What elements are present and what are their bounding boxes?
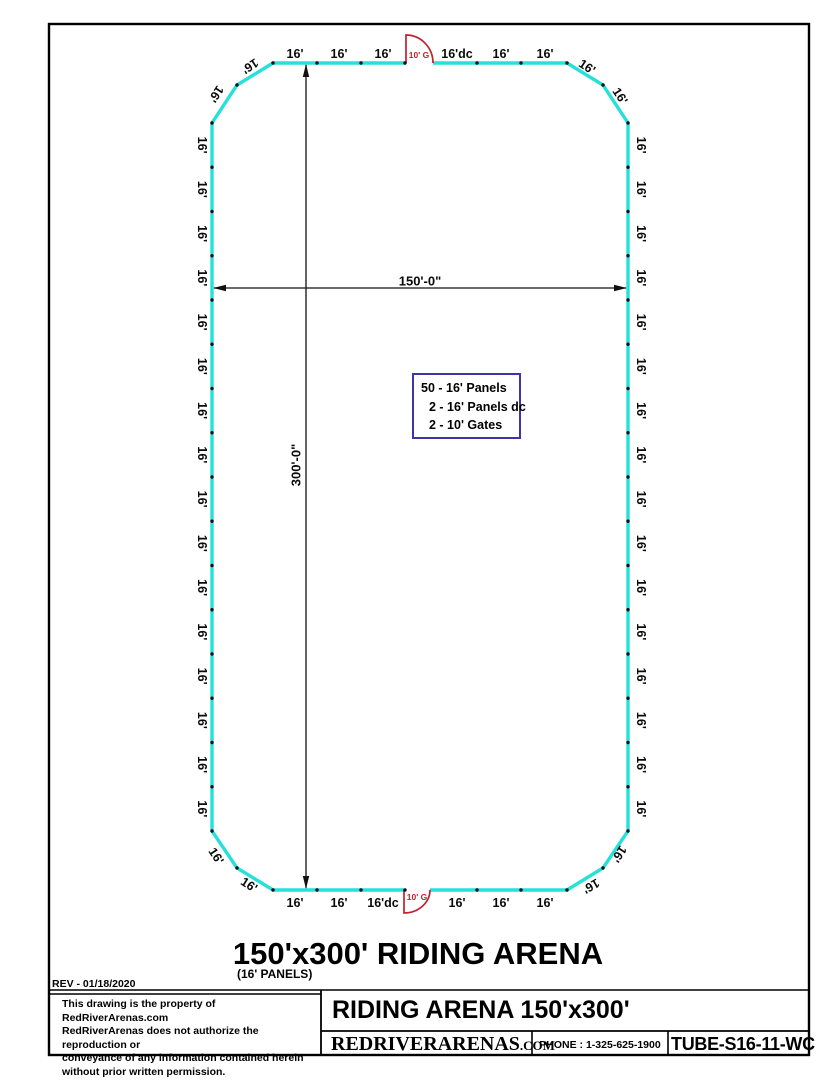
panel-joint-dot [626, 741, 629, 744]
panel-joint-dot [626, 697, 629, 700]
width-dimension-label: 150'-0" [399, 274, 442, 289]
panel-label: 16' [195, 269, 209, 286]
panel-label: 16' [493, 896, 510, 910]
panel-label: 16' [634, 668, 648, 685]
panel-joint-dot [359, 61, 362, 64]
panel-joint-dot [626, 785, 629, 788]
panel-joint-dot [210, 520, 213, 523]
panel-label: 16' [195, 225, 209, 242]
panel-joint-dot [210, 121, 213, 124]
panel-joint-dot [210, 254, 213, 257]
panel-label: 16'dc [367, 896, 399, 910]
panel-joint-dot [210, 387, 213, 390]
panel-joint-dot [626, 652, 629, 655]
panel-joint-dot [626, 343, 629, 346]
page-subtitle: (16' PANELS) [237, 967, 312, 981]
panel-label: 16' [331, 47, 348, 61]
panel-label: 16' [195, 314, 209, 331]
panel-joint-dot [315, 888, 318, 891]
panel-labels-layer: 16'16'16'16'16'16'16'16'16'16'16'16'16'1… [195, 47, 648, 910]
panel-joint-dot [626, 387, 629, 390]
panel-label: 16' [195, 491, 209, 508]
panel-joint-dot [565, 61, 568, 64]
panel-label: 16' [634, 800, 648, 817]
panel-label: 16' [634, 269, 648, 286]
panel-joint-dot [271, 61, 274, 64]
panel-joint-dot [403, 61, 406, 64]
phone-number: PHONE : 1-325-625-1900 [534, 1039, 666, 1051]
panel-label: 16' [195, 623, 209, 640]
panel-label: 16' [537, 896, 554, 910]
revision-label: REV - 01/18/2020 [52, 978, 135, 990]
panel-label: 16' [634, 579, 648, 596]
arena-outline-right [430, 63, 628, 890]
arena-diagram: 16'16'16'16'16'16'16'16'16'16'16'16'16'1… [0, 0, 835, 1080]
panel-joint-dot [626, 475, 629, 478]
panel-joint-dot [271, 888, 274, 891]
panel-label: 16' [195, 137, 209, 154]
panel-joint-dot [519, 888, 522, 891]
copyright-line: without prior written permission. [62, 1066, 318, 1080]
panel-joint-dot [626, 564, 629, 567]
panel-joint-dot [519, 61, 522, 64]
legend-line: 2 - 10' Gates [421, 416, 519, 435]
panel-joint-dot [235, 866, 238, 869]
panel-label: 16' [610, 85, 631, 107]
panel-joint-dot [315, 61, 318, 64]
panel-label: 16' [537, 47, 554, 61]
panel-label: 16' [634, 756, 648, 773]
panel-label: 16' [634, 314, 648, 331]
panel-joint-dot [210, 166, 213, 169]
drawing-sheet: 16'16'16'16'16'16'16'16'16'16'16'16'16'1… [0, 0, 835, 1080]
panel-joint-dot [210, 431, 213, 434]
panel-label: 16' [493, 47, 510, 61]
product-title: RIDING ARENA 150'x300' [332, 996, 630, 1025]
panel-joint-dot [403, 888, 406, 891]
panel-joint-dot [601, 83, 604, 86]
panel-joint-dot [210, 564, 213, 567]
panel-label: 16' [195, 712, 209, 729]
panel-label: 16' [449, 896, 466, 910]
panel-joint-dot [626, 166, 629, 169]
arrow-left-icon [213, 285, 226, 291]
arrow-right-icon [614, 285, 627, 291]
panel-joint-dot [235, 83, 238, 86]
panel-joint-dot [210, 741, 213, 744]
panel-joint-dot [475, 61, 478, 64]
panel-label: 16' [287, 896, 304, 910]
panel-joint-dot [210, 608, 213, 611]
panel-label: 16' [195, 756, 209, 773]
panel-joint-dot [626, 210, 629, 213]
bottom-gate-label: 10' G [407, 892, 428, 902]
panel-label: 16' [634, 491, 648, 508]
panel-joint-dot [210, 697, 213, 700]
panel-joint-dot [210, 210, 213, 213]
panel-label: 16' [634, 402, 648, 419]
panel-label: 16' [375, 47, 392, 61]
panel-label: 16' [634, 623, 648, 640]
panel-label: 16' [576, 57, 598, 78]
panel-joint-dot [626, 520, 629, 523]
copyright-line: RedRiverArenas does not authorize the re… [62, 1025, 318, 1052]
model-number: TUBE-S16-11-WC [671, 1034, 815, 1055]
copyright-line: This drawing is the property of RedRiver… [62, 998, 318, 1025]
panel-joint-dot [626, 254, 629, 257]
legend-box: 50 - 16' Panels 2 - 16' Panels dc 2 - 10… [412, 373, 521, 439]
brand-main: REDRIVERARENAS [331, 1033, 520, 1055]
copyright-line: conveyance of any information contained … [62, 1052, 318, 1066]
panel-label: 16' [195, 800, 209, 817]
panel-label: 16' [634, 358, 648, 375]
arrow-down-icon [303, 876, 309, 889]
arena-outline-left [212, 63, 406, 890]
panel-joint-dot [210, 652, 213, 655]
page-border [49, 24, 809, 1055]
panel-joint-dot [626, 121, 629, 124]
panel-label: 16' [238, 875, 260, 896]
panel-label: 16' [195, 358, 209, 375]
panel-joint-dot [210, 343, 213, 346]
top-gate-label: 10' G [409, 50, 430, 60]
height-dimension-label: 300'-0" [289, 444, 304, 487]
panel-joint-dot [626, 298, 629, 301]
panel-label: 16' [634, 535, 648, 552]
panel-joint-dot [210, 785, 213, 788]
panel-label: 16' [195, 402, 209, 419]
panel-joint-dot [626, 829, 629, 832]
panel-joint-dot [210, 475, 213, 478]
panel-label: 16' [609, 843, 630, 865]
panel-label: 16' [195, 535, 209, 552]
panel-label: 16' [287, 47, 304, 61]
arrow-up-icon [303, 64, 309, 77]
copyright-text: This drawing is the property of RedRiver… [62, 998, 318, 1079]
panel-joint-dot [601, 866, 604, 869]
panel-label: 16' [195, 181, 209, 198]
panel-joint-dot [359, 888, 362, 891]
brand-name: REDRIVERARENAS.COM [331, 1033, 555, 1056]
panel-label: 16' [195, 446, 209, 463]
panel-joint-dot [626, 431, 629, 434]
panel-label: 16' [331, 896, 348, 910]
panel-label: 16' [195, 579, 209, 596]
panel-label: 16' [634, 712, 648, 729]
panel-label: 16' [195, 668, 209, 685]
panel-label: 16'dc [441, 47, 473, 61]
panel-label: 16' [634, 225, 648, 242]
legend-line: 50 - 16' Panels [421, 379, 519, 398]
panel-label: 16' [634, 137, 648, 154]
panel-label: 16' [206, 83, 227, 105]
panel-joint-dot [626, 608, 629, 611]
panel-joint-dot [210, 298, 213, 301]
panel-joint-dot [210, 829, 213, 832]
legend-line: 2 - 16' Panels dc [421, 398, 519, 417]
panel-joint-dot [565, 888, 568, 891]
panel-label: 16' [634, 446, 648, 463]
panel-label: 16' [634, 181, 648, 198]
panel-joint-dot [475, 888, 478, 891]
